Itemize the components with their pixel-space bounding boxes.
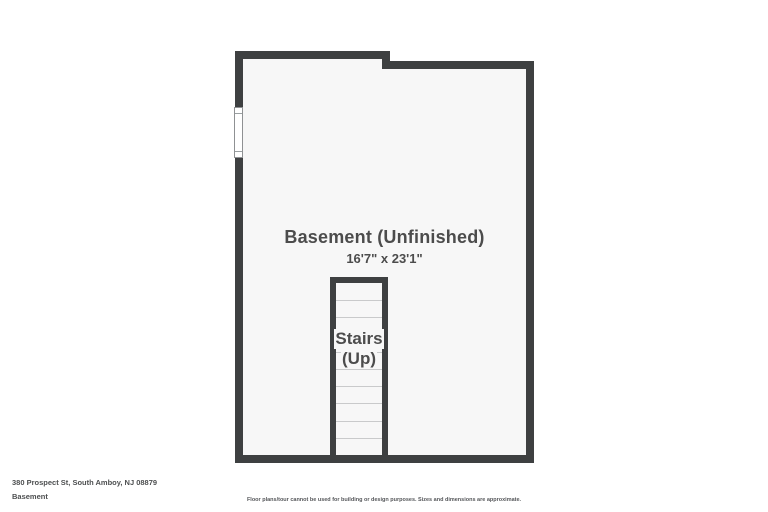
room-label: Basement (Unfinished) 16'7" x 23'1" [235, 227, 534, 266]
stair-wall-top [330, 277, 388, 283]
window-frame-line [235, 151, 242, 152]
footer-disclaimer: Floor plans/tour cannot be used for buil… [0, 497, 768, 503]
stair-treads [336, 283, 382, 455]
footer-address: 380 Prospect St, South Amboy, NJ 08879 [12, 478, 157, 487]
stairs-label-line2: (Up) [341, 349, 377, 369]
stairs-label: Stairs (Up) [330, 329, 388, 369]
room-title: Basement (Unfinished) [235, 227, 534, 248]
stair-tread-line [336, 300, 382, 301]
wall-top-right [382, 61, 534, 69]
floorplan-page: Basement (Unfinished) 16'7" x 23'1" Stai… [0, 0, 768, 512]
stairs-label-line1: Stairs [334, 329, 383, 349]
stair-tread-line [336, 386, 382, 387]
stairs: Stairs (Up) [330, 277, 388, 455]
room-dimensions: 16'7" x 23'1" [235, 251, 534, 266]
stair-tread-line [336, 421, 382, 422]
stair-tread-line [336, 317, 382, 318]
window-icon [234, 107, 243, 158]
window-frame-line [235, 113, 242, 114]
wall-bottom [235, 455, 534, 463]
basement-floorplan: Basement (Unfinished) 16'7" x 23'1" Stai… [235, 51, 534, 463]
stair-tread-line [336, 438, 382, 439]
stair-tread-line [336, 369, 382, 370]
wall-top-left [235, 51, 390, 59]
stair-tread-line [336, 403, 382, 404]
